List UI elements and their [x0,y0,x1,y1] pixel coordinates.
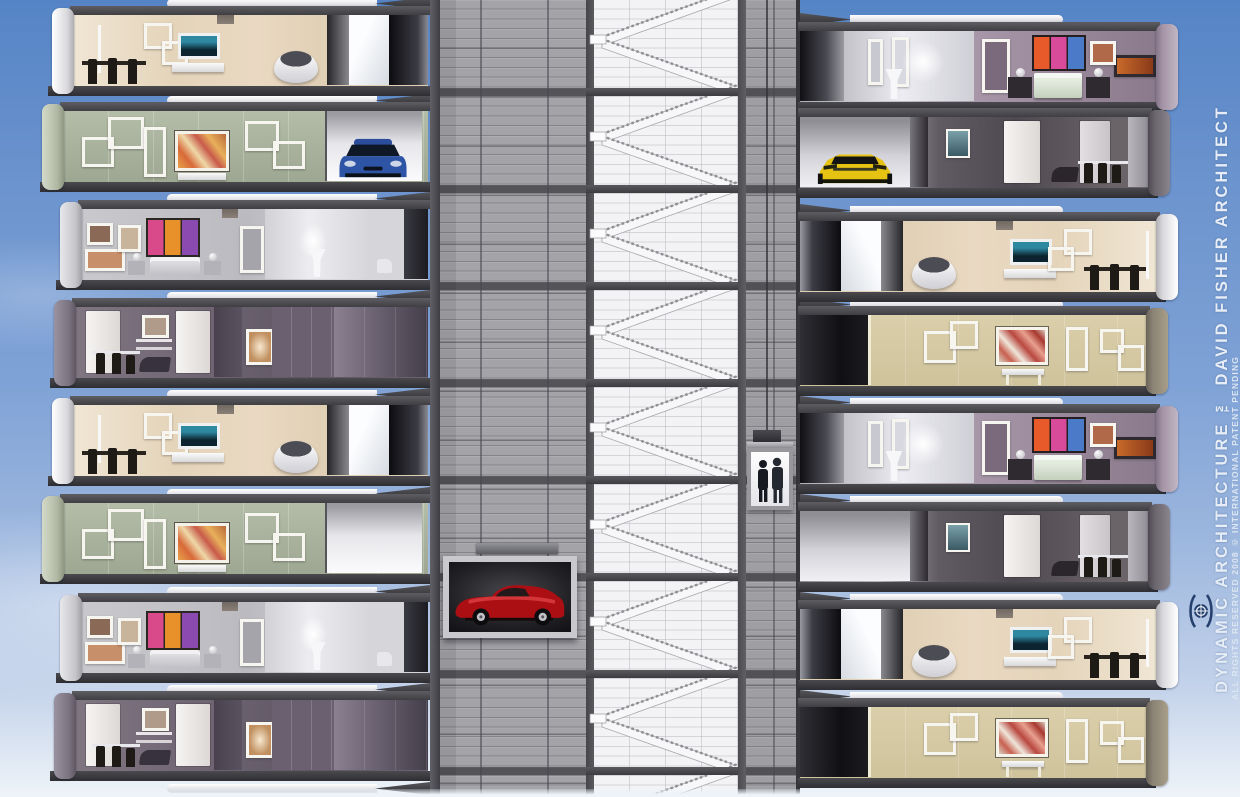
floor-slab-bottom [798,680,1166,690]
floor-end-cap [52,8,74,94]
tall-mirror [982,421,1010,475]
tv-stand [172,453,224,462]
floor-slab-top [798,212,1160,221]
abstract-painting-red [996,327,1048,365]
garage-bay [325,503,422,573]
dark-garage-opening [800,315,871,385]
floor-slab-top [72,298,430,307]
wall-ledge [136,339,172,342]
desk-chair [1084,557,1093,577]
dark-garage-opening [800,707,871,777]
dining-chair [128,449,137,474]
apartment-floor-right-4 [798,306,1178,396]
apartment-floor-right-6 [798,502,1178,592]
ceiling-vent [222,602,238,611]
tall-mirror [240,226,264,273]
floor-interior-mauve-bedroom [800,31,1156,102]
wall-art-frame [142,708,169,731]
bathroom-zone [844,31,974,101]
apartment-floor-right-1 [798,22,1178,112]
floor-interior-beige-living [74,405,428,476]
bathroom-zone [265,602,370,672]
floor-slab-top [70,6,430,15]
building-cross-section-scene: DYNAMIC ARCHITECTURE ™ DAVID FISHER ARCH… [0,0,1240,797]
light-end-panel [1128,117,1148,187]
floor-slab-bottom [40,182,430,192]
desk-chair [96,746,105,767]
wall-shelf-box [1118,737,1144,763]
window-panel [349,15,389,85]
abstract-painting [175,523,229,563]
bathroom-mirror-glow [902,41,944,83]
dark-core-corner [800,31,844,101]
floor-slab-top [798,502,1152,511]
floor-end-cap [1148,504,1170,590]
console-leg [1038,375,1041,385]
apartment-floor-right-3 [798,212,1178,302]
white-door [176,311,210,373]
wall-art-frame [1090,41,1116,65]
floor-slab-bottom [798,582,1158,592]
table-lamp [1016,450,1025,459]
desk-chair [112,746,121,767]
core-left-column-seam [480,0,482,797]
elevator-cab [747,448,793,510]
floor-end-cap [1148,110,1170,196]
dining-chair [1130,653,1139,678]
wardrobe-panel [881,609,903,679]
console-shelf [178,565,226,572]
tall-mirror [982,39,1010,93]
panel-wall-shaded [334,307,428,377]
console-leg [1006,375,1009,385]
dark-end-panel [404,209,428,279]
dining-chair [88,449,97,474]
wall-ledge [136,740,172,743]
dark-end-panel [800,221,841,291]
abstract-painting [175,131,229,171]
round-lounge-chair [274,51,318,83]
floor-slab-bottom [48,476,430,486]
sofa [150,257,200,274]
floor-end-cap [54,300,76,386]
triptych-painting [148,613,198,648]
wall-shelf-box [108,117,144,149]
core-floor-slab [586,767,746,775]
side-table [204,261,221,275]
floor-end-cap [1156,406,1178,492]
wall-shelf-box [950,321,978,349]
bathroom-zone [844,413,974,483]
toilet [377,259,392,273]
floor-end-cap [1156,214,1178,300]
apartment-floor-left-7 [40,593,430,683]
desk-chair [126,355,135,374]
floor-interior-green-gallery [64,503,428,574]
lightbox-art [246,722,274,758]
ceiling-vent [996,221,1013,230]
framed-picture [946,523,970,552]
light-end-panel [1128,511,1148,581]
core-left-column-seam [547,0,549,797]
garage-bay [800,511,912,581]
dark-partition [214,700,242,770]
round-lounge-chair [274,441,318,473]
table-lamp [1016,68,1025,77]
floor-end-cap [60,202,82,288]
desk-chair [1098,163,1107,183]
wall-tv [1010,627,1052,653]
table-lamp [1094,450,1103,459]
floor-end-cap [1156,24,1178,110]
apartment-floor-left-1 [40,6,430,96]
red-sports-car [450,570,568,632]
dining-chair [88,59,97,84]
wall-art-frame [1090,423,1116,447]
core-right-column-seam [773,0,775,797]
wall-shelf-box [273,533,305,561]
core-left-column [456,0,586,797]
floor-lamp [98,415,101,463]
floor-interior-khaki-gallery [800,315,1146,386]
core-floor-slab [586,185,746,193]
floor-interior-beige-living [74,15,428,86]
floor-interior-beige-living [800,221,1156,292]
console-leg [1006,767,1009,777]
floor-slab-top [72,691,430,700]
dining-chair [108,58,117,84]
table-lamp [1094,68,1103,77]
table-lamp [133,253,141,261]
floor-slab-top [798,600,1160,609]
apartment-floor-right-2 [798,108,1178,198]
abstract-painting-red [996,719,1048,757]
core-floor-slab [586,670,746,678]
floor-slab-top [60,494,430,503]
tall-display-frame [1066,719,1088,763]
floor-interior-dark-suite-garage [800,511,1148,582]
tall-display-frame [144,519,166,569]
apartment-floor-left-5 [40,396,430,486]
floor-slab-top [60,102,430,111]
small-frame [87,616,113,638]
dark-end-panel [404,602,428,672]
apartment-floor-right-5 [798,404,1178,494]
floor-end-cap [42,496,64,582]
white-door [176,704,210,766]
framed-picture [946,129,970,158]
tall-display-frame [1066,327,1088,371]
nightstand [1086,77,1110,98]
desk-chair [1098,557,1107,577]
desk-chair [126,748,135,767]
round-lounge-chair [912,257,956,289]
chaise-lounge [1051,561,1079,576]
dining-chair [1110,264,1119,290]
apartment-floor-right-7 [798,600,1178,690]
wardrobe-panel [881,221,903,291]
bottom-edge-haze [0,789,1240,797]
elevator-cable [766,0,768,436]
dark-core-corner [800,413,844,483]
floor-slab-top [70,396,430,405]
elevator-passengers [751,452,789,506]
wall-shelf-box [1048,247,1074,271]
triptych-painting [148,220,198,255]
floor-slab-bottom [50,771,430,781]
bathroom-mirror-glow [902,423,944,465]
desk-chair [1084,163,1093,183]
desk-chair [1112,559,1121,577]
core-floor-slab [586,379,746,387]
white-door [1004,121,1040,183]
dark-end-panel [800,609,841,679]
bed-sofa [1034,455,1082,480]
toilet [377,652,392,666]
floor-slab-bottom [798,292,1166,302]
dining-chair [1130,265,1139,290]
wall-shelf-box [1118,345,1144,371]
floor-slab-bottom [798,386,1156,396]
floor-end-cap [1146,700,1168,786]
white-door [1004,515,1040,577]
floor-lamp [98,25,101,73]
display-shelf [1114,55,1156,77]
wall-shelf-box [1048,635,1074,659]
floor-slab-bottom [40,574,430,584]
window-panel [349,405,389,475]
lightbox-art [246,329,274,365]
tall-mirror [240,619,264,666]
wall-tv [1010,239,1052,265]
floor-slab-bottom [56,673,430,683]
dark-end-panel [389,15,428,85]
floor-interior-grey-lounge [82,602,428,673]
floor-lamp [1146,619,1149,667]
small-frame [87,223,113,245]
side-table [204,654,221,668]
floor-slab-bottom [798,188,1158,198]
bathroom-zone [265,209,370,279]
floor-slab-top [798,698,1150,707]
blue-sports-car [338,135,408,181]
nightstand [1086,459,1110,480]
apartment-floor-left-6 [40,494,430,584]
wall-art-frame [142,315,169,338]
display-shelf [1114,437,1156,459]
ceiling-vent [222,209,238,218]
floor-interior-mauve-bedroom [800,413,1156,484]
core-left-inner-strip [440,0,456,797]
floor-interior-khaki-gallery [800,707,1146,778]
floor-interior-grey-lounge [82,209,428,280]
wall-tv [178,33,220,59]
garage-partition [910,511,928,581]
small-frame [118,225,141,252]
small-frame [118,618,141,645]
floor-slab-top [798,404,1160,413]
core-right-mullion [738,0,746,797]
floor-end-cap [54,693,76,779]
dark-partition [214,307,242,377]
dark-end-panel [389,405,428,475]
floor-end-cap [42,104,64,190]
wall-shelf-box [108,509,144,541]
dining-chair [1090,653,1099,678]
car-elevator-beam [476,543,558,554]
panel-wall-shaded [334,700,428,770]
wall-ledge [136,732,172,735]
floor-slab-top [798,108,1152,117]
chaise-lounge [139,357,171,372]
core-floor-slab [586,573,746,581]
floor-end-cap [1156,602,1178,688]
ceiling-vent [996,609,1013,618]
floor-slab-top [78,593,430,602]
apartment-floor-right-8 [798,698,1178,788]
triptych-painting [1034,419,1084,451]
floor-end-cap [1146,308,1168,394]
panel-wall [272,307,334,377]
wall-shelf-box [950,713,978,741]
floor-interior-dark-suite-garage [800,117,1148,188]
core-floor-slab [586,476,746,484]
wide-frame [85,249,125,271]
apartment-floor-left-2 [40,102,430,192]
console-leg [1038,767,1041,777]
side-table [128,261,145,275]
floor-interior-beige-living [800,609,1156,680]
window-panel [841,221,881,291]
dining-chair [1090,265,1099,290]
floor-slab-bottom [50,378,430,388]
apartment-floor-left-4 [40,298,430,388]
floor-slab-top [798,22,1160,31]
floor-interior-green-gallery [64,111,428,182]
apartment-floor-left-8 [40,691,430,781]
table-lamp [209,253,217,261]
rights-notice-text: ALL RIGHTS RESERVED 2008 © INTERNATIONAL… [1230,356,1240,700]
chaise-lounge [139,750,171,765]
table-lamp [133,646,141,654]
garage-partition [910,117,928,187]
yellow-sports-car [816,143,894,187]
triptych-painting [1034,37,1084,69]
panel-wall [272,700,334,770]
tall-display-frame [144,127,166,177]
dynamic-architecture-logo-icon [1188,590,1214,634]
core-floor-slab [586,282,746,290]
wall-ledge [136,347,172,350]
floor-slab-bottom [798,484,1166,494]
dining-chair [128,59,137,84]
sofa [150,650,200,667]
desk-chair [112,353,121,374]
garage-bay [325,111,422,181]
round-lounge-chair [912,645,956,677]
wall-shelf-box [273,141,305,169]
ceiling-vent [217,15,234,24]
wide-frame [85,642,125,664]
floor-slab-top [78,200,430,209]
garage-bay [800,117,912,187]
nightstand [1008,77,1032,98]
wardrobe-panel [327,15,349,85]
elevator-mechanism [753,430,781,442]
nightstand [1008,459,1032,480]
core-left-edge [430,0,440,797]
floor-interior-dark-suite [76,700,428,771]
floor-end-cap [52,398,74,484]
car-elevator-cab [443,556,577,638]
bathroom-mirror [868,39,883,85]
ceiling-vent [217,405,234,414]
floor-slab-bottom [48,86,430,96]
core-floor-slab [586,88,746,96]
wardrobe-panel [327,405,349,475]
dining-chair [108,448,117,474]
side-table [128,654,145,668]
window-panel [841,609,881,679]
table-lamp [209,646,217,654]
chaise-lounge [1051,167,1079,182]
wall-tv [178,423,220,449]
tv-stand [172,63,224,72]
dining-chair [1110,652,1119,678]
floor-slab-top [798,306,1150,315]
floor-interior-dark-suite [76,307,428,378]
bathroom-mirror [868,421,883,467]
desk-chair [1112,165,1121,183]
floor-slab-bottom [56,280,430,290]
console-shelf [178,173,226,180]
desk-chair [96,353,105,374]
floor-slab-bottom [798,778,1156,788]
floor-lamp [1146,231,1149,279]
apartment-floor-left-3 [40,200,430,290]
floor-end-cap [60,595,82,681]
bed-sofa [1034,73,1082,98]
